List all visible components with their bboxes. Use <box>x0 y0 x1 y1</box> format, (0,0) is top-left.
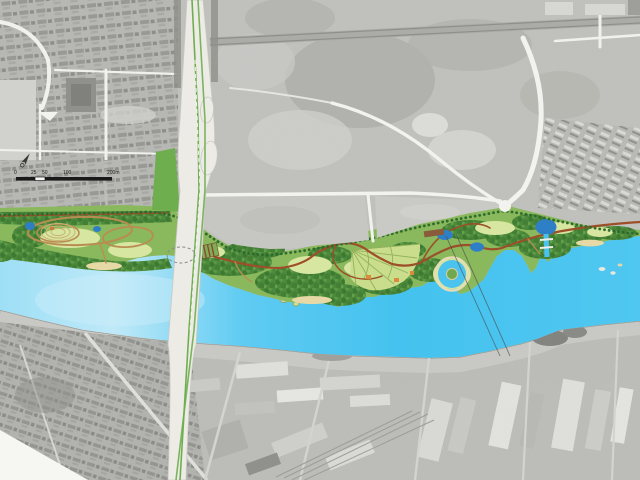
scale-label-100: 100 <box>63 170 72 176</box>
masterplan-canvas: 0 25 50 100 200m <box>0 0 640 480</box>
scale-bar-segments <box>16 177 112 181</box>
channel <box>546 234 547 257</box>
scale-label-50: 50 <box>42 170 48 176</box>
scale-label-200: 200m <box>107 170 120 176</box>
road-junction <box>499 200 511 212</box>
scale-label-0: 0 <box>14 170 17 176</box>
site-plan-svg: 0 25 50 100 200m <box>0 0 640 480</box>
scale-label-25: 25 <box>31 170 37 176</box>
lagoon-island <box>447 269 458 280</box>
